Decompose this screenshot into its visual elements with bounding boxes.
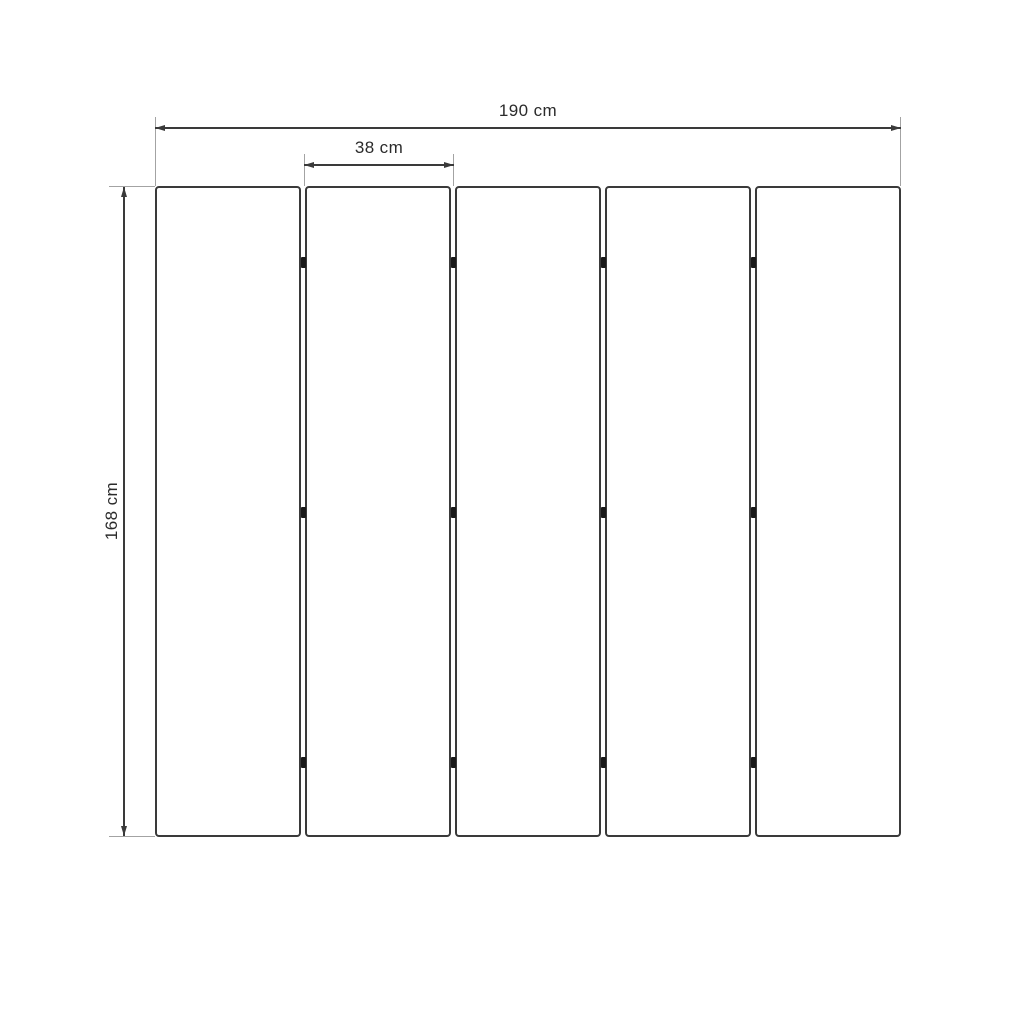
panel-4: [605, 186, 751, 837]
total-width-dimension-line: [155, 127, 901, 129]
hinge: [301, 507, 306, 518]
hinge: [751, 257, 756, 268]
hinge: [301, 757, 306, 768]
height-dimension-line: [123, 187, 125, 836]
arrow-left-icon: [155, 125, 165, 131]
hinge: [751, 507, 756, 518]
hinge: [751, 757, 756, 768]
extension-line-height-bottom: [109, 836, 155, 838]
panel-5: [755, 186, 901, 837]
height-label: 168 cm: [102, 461, 122, 561]
panel-1: [155, 186, 301, 837]
arrow-left-icon: [304, 162, 314, 168]
extension-line-panel-width-right: [453, 154, 455, 186]
arrow-right-icon: [891, 125, 901, 131]
hinge: [601, 757, 606, 768]
panel-row: [155, 186, 901, 837]
hinge: [601, 507, 606, 518]
arrow-down-icon: [121, 826, 127, 836]
hinge: [601, 257, 606, 268]
total-width-label: 190 cm: [155, 101, 901, 121]
panel-3: [455, 186, 601, 837]
panel-width-label: 38 cm: [304, 138, 454, 158]
hinge: [301, 257, 306, 268]
panel-2: [305, 186, 451, 837]
panel-width-dimension-line: [304, 164, 454, 166]
hinge: [451, 507, 456, 518]
dimension-diagram: 190 cm 38 cm 168 cm: [0, 0, 1024, 1024]
hinge: [451, 757, 456, 768]
extension-line-panel-width-left: [304, 154, 306, 186]
extension-line-height-top: [109, 186, 155, 188]
arrow-right-icon: [444, 162, 454, 168]
hinge: [451, 257, 456, 268]
arrow-up-icon: [121, 187, 127, 197]
